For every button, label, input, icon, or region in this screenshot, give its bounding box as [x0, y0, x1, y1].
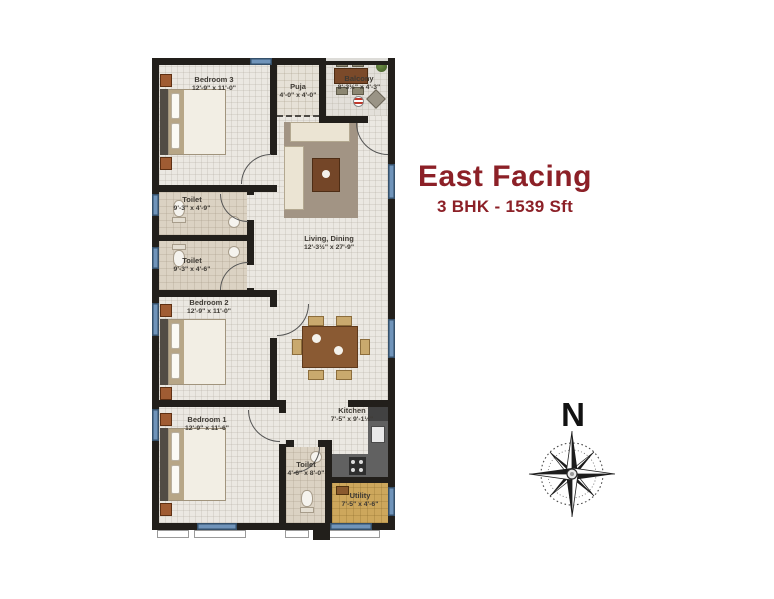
kitchen-sink: [371, 426, 385, 443]
room-label-utility: Utility 7'-5" x 4'-6": [342, 491, 379, 510]
bed: [160, 304, 226, 400]
window: [197, 523, 237, 530]
pillow: [171, 123, 180, 149]
nightstand: [160, 387, 172, 400]
wall: [326, 116, 368, 123]
room-dims: 4'-0" x 4'-0": [280, 92, 317, 101]
dining-chair: [336, 370, 352, 380]
room-name: Toilet: [174, 256, 211, 266]
projection: [194, 530, 246, 538]
wall: [388, 58, 395, 530]
pillow: [171, 93, 180, 119]
dining-chair: [336, 316, 352, 326]
pillow: [171, 353, 180, 379]
stove: [349, 457, 366, 475]
pillow: [171, 432, 180, 461]
room-name: Puja: [280, 82, 317, 92]
toilet-cistern: [300, 507, 314, 513]
plate: [312, 334, 321, 343]
plan-subtitle: 3 BHK - 1539 Sft: [405, 197, 605, 217]
wall: [270, 58, 277, 155]
burner: [351, 460, 355, 464]
title-block: East Facing 3 BHK - 1539 Sft: [405, 160, 605, 217]
room-label-bedroom2: Bedroom 2 12'-9" x 11'-0": [187, 298, 231, 317]
room-name: Bedroom 3: [192, 75, 236, 85]
window: [152, 194, 159, 216]
wall: [152, 235, 247, 241]
room-dims: 12'-9" x 11'-6": [185, 425, 229, 434]
wall: [325, 440, 332, 523]
burner: [351, 468, 355, 472]
room-name: Bedroom 2: [187, 298, 231, 308]
sofa: [284, 146, 304, 210]
burner: [359, 460, 363, 464]
floor-plan: Bedroom 3 12'-9" x 11'-0" Puja 4'-0" x 4…: [152, 58, 395, 530]
toilet-wc: [301, 490, 313, 507]
dining-chair: [308, 370, 324, 380]
table-decor: [322, 170, 330, 178]
wall: [152, 185, 277, 192]
wall: [286, 440, 294, 447]
wash-basin: [228, 246, 240, 258]
room-name: Kitchen: [331, 406, 374, 416]
nightstand: [160, 157, 172, 170]
headboard: [160, 428, 168, 501]
room-dims: 7'-5" x 4'-6": [342, 501, 379, 510]
room-name: Balcony: [338, 74, 381, 84]
sofa: [290, 122, 350, 142]
nightstand: [160, 503, 172, 516]
room-dims: 8'-3½" x 4'-3": [338, 84, 381, 93]
wall: [279, 407, 286, 413]
compass-rose-icon: [526, 428, 618, 520]
nightstand: [160, 413, 172, 426]
wall: [319, 58, 326, 123]
room-name: Living, Dining: [304, 234, 354, 244]
room-label-bedroom3: Bedroom 3 12'-9" x 11'-0": [192, 75, 236, 94]
wall: [152, 290, 277, 297]
dining-set: [292, 314, 370, 382]
headboard: [160, 89, 168, 155]
room-dims: 7'-5" x 9'-1½": [331, 416, 374, 425]
headboard: [160, 319, 168, 385]
room-dims: 12'-3½" x 27'-9": [304, 244, 354, 253]
window: [152, 247, 159, 269]
room-dims: 9'-3" x 4'-9": [174, 205, 211, 214]
wall: [270, 338, 277, 400]
dining-chair: [292, 339, 302, 355]
wall: [152, 400, 286, 407]
puja-open-boundary: [277, 115, 319, 117]
window: [152, 303, 159, 336]
wall: [332, 477, 388, 483]
plate: [334, 346, 343, 355]
toilet-cistern: [172, 217, 186, 223]
window: [388, 164, 395, 199]
window: [330, 523, 372, 530]
burner: [359, 468, 363, 472]
room-label-balcony: Balcony 8'-3½" x 4'-3": [338, 74, 381, 93]
room-dims: 9'-3" x 4'-6": [174, 266, 211, 275]
room-name: Toilet: [174, 195, 211, 205]
plan-title: East Facing: [405, 160, 605, 194]
dining-table: [302, 326, 358, 368]
balcony-stool: [353, 96, 364, 107]
room-label-bedroom1: Bedroom 1 12'-9" x 11'-6": [185, 415, 229, 434]
projection: [285, 530, 309, 538]
wall: [247, 185, 254, 195]
wall: [247, 220, 254, 265]
wall: [270, 297, 277, 307]
room-name: Utility: [342, 491, 379, 501]
balcony-railing: [326, 58, 388, 61]
dining-chair: [360, 339, 370, 355]
window: [152, 409, 159, 441]
page: Bedroom 3 12'-9" x 11'-0" Puja 4'-0" x 4…: [0, 0, 774, 599]
room-label-living: Living, Dining 12'-3½" x 27'-9": [304, 234, 354, 253]
room-label-toilet-b: Toilet 9'-3" x 4'-6": [174, 256, 211, 275]
projection: [157, 530, 189, 538]
pillow: [171, 323, 180, 349]
window: [250, 58, 272, 65]
room-label-kitchen: Kitchen 7'-5" x 9'-1½": [331, 406, 374, 425]
pillow: [171, 465, 180, 494]
room-label-puja: Puja 4'-0" x 4'-0": [280, 82, 317, 101]
window: [388, 487, 395, 516]
room-label-toilet-a: Toilet 9'-3" x 4'-9": [174, 195, 211, 214]
wall: [279, 444, 286, 523]
room-name: Toilet: [288, 460, 325, 470]
room-dims: 4'-6" x 8'-0": [288, 470, 325, 479]
entrance-step: [313, 530, 330, 540]
sofa-set: [284, 122, 358, 218]
room-dims: 12'-9" x 11'-0": [192, 85, 236, 94]
window: [388, 319, 395, 358]
projection: [328, 530, 380, 538]
nightstand: [160, 74, 172, 87]
dining-chair: [308, 316, 324, 326]
nightstand: [160, 304, 172, 317]
room-label-toilet-c: Toilet 4'-6" x 8'-0": [288, 460, 325, 479]
room-dims: 12'-9" x 11'-0": [187, 308, 231, 317]
room-name: Bedroom 1: [185, 415, 229, 425]
